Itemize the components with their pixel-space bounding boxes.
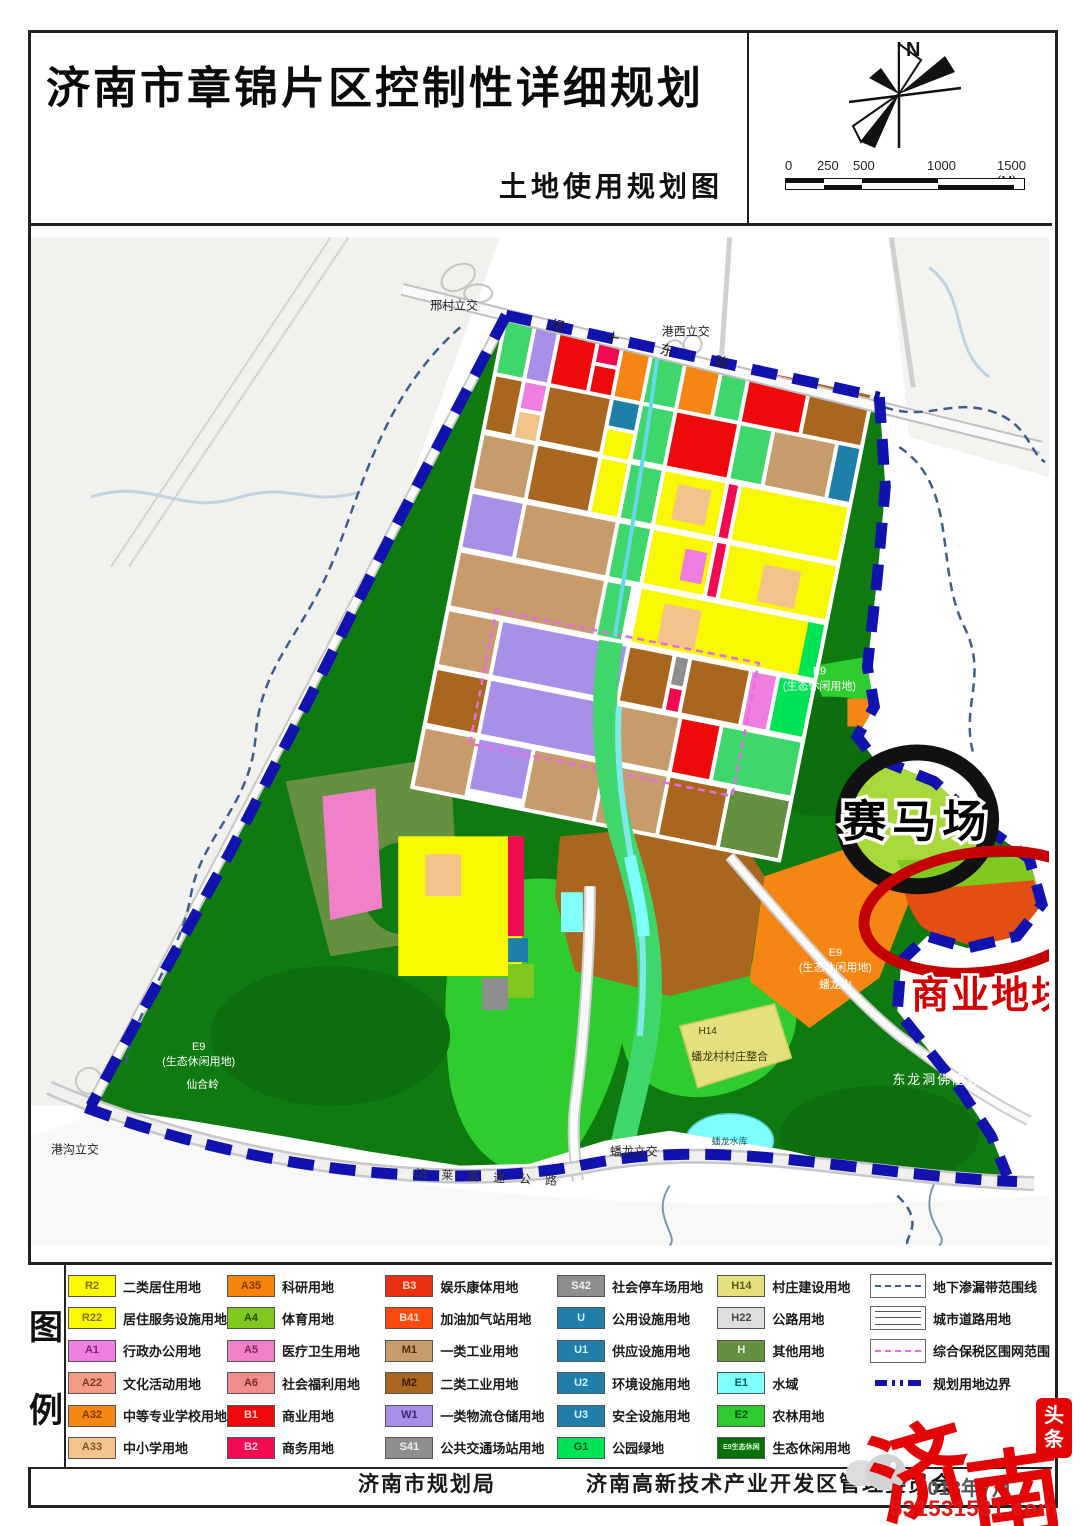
legend-swatch: E1 <box>717 1372 765 1394</box>
seepage-line-symbol <box>870 1274 926 1298</box>
footer-org1: 济南市规划局 <box>358 1468 496 1498</box>
map-area: 经十东路 济莱高速公路 邢村立交 港西立交 港沟立交 蟠龙立交 E9 (生态休闲… <box>31 223 1049 1260</box>
footer-org2: 济南高新技术产业开发区管理委员会 <box>586 1468 954 1498</box>
legend-label: 村庄建设用地 <box>772 1277 850 1296</box>
legend-panel: 图 例 R2二类居住用地 R22居住服务设施用地 A1行政办公用地 A22文化活… <box>28 1262 1052 1469</box>
interchange-gangxi: 港西立交 <box>662 323 710 338</box>
legend-label: 公园绿地 <box>612 1438 664 1457</box>
legend-item: U公用设施用地 <box>557 1305 717 1331</box>
legend-label: 公路用地 <box>772 1309 824 1328</box>
h14-name-label: 蟠龙村村庄整合 <box>691 1049 768 1063</box>
legend-item: G1公园绿地 <box>557 1435 717 1461</box>
legend-item: A5医疗卫生用地 <box>227 1338 385 1364</box>
legend-column: 地下渗漏带范围线 城市道路用地 综合保税区围网范围 规划用地边界 <box>870 1269 1050 1465</box>
legend-label: 环境设施用地 <box>612 1374 690 1393</box>
legend-item: 城市道路用地 <box>870 1305 1050 1331</box>
legend-item: M2二类工业用地 <box>385 1370 557 1396</box>
legend-swatch: A22 <box>68 1372 116 1394</box>
legend-label: 综合保税区围网范围 <box>933 1341 1050 1360</box>
north-scale-cell: N 0 250 500 1000 1500 (M) <box>749 30 1052 223</box>
e9-south-code: E9 <box>829 947 842 959</box>
interchange-panlong: 蟠龙立交 <box>610 1144 658 1159</box>
legend-label: 文化活动用地 <box>123 1374 201 1393</box>
legend-item: U1供应设施用地 <box>557 1338 717 1364</box>
legend-item: E1水域 <box>717 1370 870 1396</box>
legend-label: 地下渗漏带范围线 <box>933 1277 1037 1296</box>
legend-swatch: S41 <box>385 1437 433 1459</box>
legend-swatch: M2 <box>385 1372 433 1394</box>
e9-east-code: E9 <box>813 666 826 678</box>
e9-south-name: (生态休闲用地) <box>799 960 872 974</box>
legend-label: 其他用地 <box>772 1341 824 1360</box>
legend-label: 医疗卫生用地 <box>282 1341 360 1360</box>
legend-item: B2商务用地 <box>227 1435 385 1461</box>
footer: 济南市规划局 济南高新技术产业开发区管理委员会 2018年7月 <box>28 1464 1052 1502</box>
legend-swatch: H <box>717 1340 765 1362</box>
temple-label: 东龙洞佛隐寺 <box>892 1072 982 1087</box>
scale-bar-graphic <box>785 178 1025 190</box>
legend-swatch: A5 <box>227 1340 275 1362</box>
legend-item: R22居住服务设施用地 <box>68 1305 227 1331</box>
legend-item: U3安全设施用地 <box>557 1403 717 1429</box>
legend-column: S42社会停车场用地 U公用设施用地 U1供应设施用地 U2环境设施用地 U3安… <box>557 1269 717 1465</box>
legend-swatch: B1 <box>227 1405 275 1427</box>
legend-label: 二类工业用地 <box>440 1374 518 1393</box>
footer-date: 2018年7月 <box>916 1472 1012 1501</box>
title-cell: 济南市章锦片区控制性详细规划 土地使用规划图 <box>28 30 749 223</box>
scale-tick: 500 <box>853 158 875 173</box>
interchange-gangou: 港沟立交 <box>51 1142 99 1157</box>
legend-swatch: M1 <box>385 1340 433 1362</box>
legend-swatch: U3 <box>557 1405 605 1427</box>
page-title: 济南市章锦片区控制性详细规划 <box>46 52 704 116</box>
h14-code-label: H14 <box>699 1026 718 1037</box>
legend-label: 娱乐康体用地 <box>440 1277 518 1296</box>
bonded-zone-symbol <box>870 1339 926 1363</box>
legend-swatch: S42 <box>557 1275 605 1297</box>
legend-label: 加油加气站用地 <box>440 1309 531 1328</box>
interchange-xingcun: 邢村立交 <box>430 297 478 312</box>
legend-item: U2环境设施用地 <box>557 1370 717 1396</box>
city-road-symbol <box>870 1306 926 1330</box>
scale-ticks: 0 250 500 1000 1500 (M) <box>785 158 1025 176</box>
legend-swatch: A6 <box>227 1372 275 1394</box>
legend-column: H14村庄建设用地 H22公路用地 H其他用地 E1水域 E2农林用地 E9生态… <box>717 1269 870 1465</box>
legend-label: 社会福利用地 <box>282 1374 360 1393</box>
legend-swatch: R2 <box>68 1275 116 1297</box>
legend-item: B3娱乐康体用地 <box>385 1273 557 1299</box>
legend-column: B3娱乐康体用地 B41加油加气站用地 M1一类工业用地 M2二类工业用地 W1… <box>385 1269 557 1465</box>
legend-item: A33中小学用地 <box>68 1435 227 1461</box>
legend-column: A35科研用地 A4体育用地 A5医疗卫生用地 A6社会福利用地 B1商业用地 … <box>227 1269 385 1465</box>
legend-swatch: U1 <box>557 1340 605 1362</box>
legend-item: E2农林用地 <box>717 1403 870 1429</box>
legend-label: 二类居住用地 <box>123 1277 201 1296</box>
legend-item: H14村庄建设用地 <box>717 1273 870 1299</box>
legend-body: R2二类居住用地 R22居住服务设施用地 A1行政办公用地 A22文化活动用地 … <box>68 1269 1050 1465</box>
legend-label: 商务用地 <box>282 1438 334 1457</box>
legend-item: S41公共交通场站用地 <box>385 1435 557 1461</box>
legend-label: 科研用地 <box>282 1277 334 1296</box>
legend-swatch: G1 <box>557 1437 605 1459</box>
legend-label: 中等专业学校用地 <box>123 1406 227 1425</box>
legend-item: 地下渗漏带范围线 <box>870 1273 1050 1299</box>
legend-item: A35科研用地 <box>227 1273 385 1299</box>
map-subtitle: 土地使用规划图 <box>499 165 723 205</box>
scale-bar: 0 250 500 1000 1500 (M) <box>785 158 1025 202</box>
scale-tick: 250 <box>817 158 839 173</box>
legend-swatch: A32 <box>68 1405 116 1427</box>
legend-item: 规划用地边界 <box>870 1370 1050 1396</box>
legend-item: A1行政办公用地 <box>68 1338 227 1364</box>
legend-item: E9生态休闲生态休闲用地 <box>717 1435 870 1461</box>
legend-label: 商业用地 <box>282 1406 334 1425</box>
legend-label: 公用设施用地 <box>612 1309 690 1328</box>
legend-label: 一类工业用地 <box>440 1341 518 1360</box>
legend-item: H22公路用地 <box>717 1305 870 1331</box>
legend-item: A6社会福利用地 <box>227 1370 385 1396</box>
legend-label: 农林用地 <box>772 1406 824 1425</box>
header: 济南市章锦片区控制性详细规划 土地使用规划图 N 0 250 500 1000 <box>28 30 1052 226</box>
legend-swatch: A1 <box>68 1340 116 1362</box>
legend-item: A4体育用地 <box>227 1305 385 1331</box>
planning-map-page: 济南市章锦片区控制性详细规划 土地使用规划图 N 0 250 500 1000 <box>0 0 1080 1526</box>
legend-item: B41加油加气站用地 <box>385 1305 557 1331</box>
legend-item: M1一类工业用地 <box>385 1338 557 1364</box>
legend-item: 综合保税区围网范围 <box>870 1338 1050 1364</box>
legend-swatch: H22 <box>717 1307 765 1329</box>
legend-swatch: U <box>557 1307 605 1329</box>
legend-label: 居住服务设施用地 <box>123 1309 227 1328</box>
legend-label: 安全设施用地 <box>612 1406 690 1425</box>
legend-swatch: A35 <box>227 1275 275 1297</box>
legend-swatch: A4 <box>227 1307 275 1329</box>
legend-swatch: W1 <box>385 1405 433 1427</box>
commercial-label: 商业地块 <box>911 975 1049 1017</box>
legend-label: 规划用地边界 <box>933 1374 1011 1393</box>
legend-swatch: R22 <box>68 1307 116 1329</box>
north-label: N <box>906 39 920 61</box>
legend-swatch: E9生态休闲 <box>717 1437 765 1459</box>
legend-swatch: B3 <box>385 1275 433 1297</box>
legend-swatch: H14 <box>717 1275 765 1297</box>
legend-swatch: E2 <box>717 1405 765 1427</box>
legend-item: H其他用地 <box>717 1338 870 1364</box>
legend-swatch: B41 <box>385 1307 433 1329</box>
legend-label: 生态休闲用地 <box>772 1438 850 1457</box>
north-arrow-icon: N <box>749 30 1049 155</box>
legend-item: A32中等专业学校用地 <box>68 1403 227 1429</box>
scale-tick: 1000 <box>927 158 956 173</box>
legend-column: R2二类居住用地 R22居住服务设施用地 A1行政办公用地 A22文化活动用地 … <box>68 1269 227 1465</box>
legend-title: 图 例 <box>28 1265 66 1467</box>
legend-label: 行政办公用地 <box>123 1341 201 1360</box>
legend-item: R2二类居住用地 <box>68 1273 227 1299</box>
legend-swatch: U2 <box>557 1372 605 1394</box>
e9-east-name: (生态休闲用地) <box>783 679 856 693</box>
boundary-symbol <box>870 1371 926 1395</box>
legend-item: A22文化活动用地 <box>68 1370 227 1396</box>
legend-item: W1一类物流仓储用地 <box>385 1403 557 1429</box>
legend-swatch: B2 <box>227 1437 275 1459</box>
legend-swatch: A33 <box>68 1437 116 1459</box>
legend-label: 城市道路用地 <box>933 1309 1011 1328</box>
racecourse-label: 赛马场 <box>842 797 992 846</box>
mountain-west-label: 仙合岭 <box>186 1077 219 1091</box>
legend-label: 供应设施用地 <box>612 1341 690 1360</box>
legend-item: B1商业用地 <box>227 1403 385 1429</box>
legend-label: 社会停车场用地 <box>612 1277 703 1296</box>
land-use-map: 经十东路 济莱高速公路 邢村立交 港西立交 港沟立交 蟠龙立交 E9 (生态休闲… <box>31 223 1049 1260</box>
scale-tick: 0 <box>785 158 792 173</box>
legend-item: S42社会停车场用地 <box>557 1273 717 1299</box>
legend-label: 一类物流仓储用地 <box>440 1406 544 1425</box>
e9-west-name: (生态休闲用地) <box>162 1054 235 1068</box>
reservoir-label: 蟠龙水库 <box>712 1136 748 1147</box>
legend-label: 体育用地 <box>282 1309 334 1328</box>
legend-label: 公共交通场站用地 <box>440 1438 544 1457</box>
legend-label: 水域 <box>772 1374 798 1393</box>
legend-label: 中小学用地 <box>123 1438 188 1457</box>
mountain-south-label: 蟠龙山 <box>819 978 852 991</box>
e9-west-code: E9 <box>192 1041 205 1053</box>
